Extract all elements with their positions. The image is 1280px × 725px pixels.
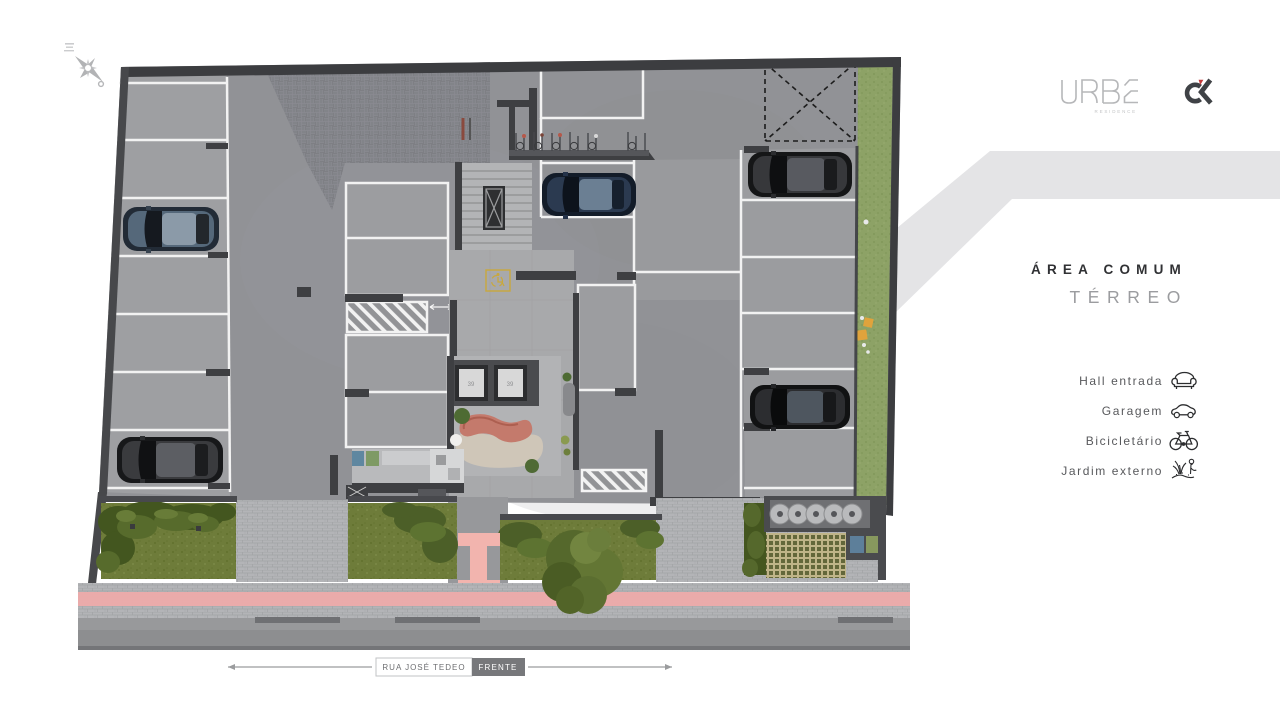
svg-text:ÁREA COMUM: ÁREA COMUM <box>1031 262 1187 277</box>
svg-text:Garagem: Garagem <box>1102 404 1163 418</box>
svg-text:Bicicletário: Bicicletário <box>1086 434 1163 448</box>
svg-text:TÉRREO: TÉRREO <box>1069 287 1188 307</box>
svg-text:FRENTE: FRENTE <box>478 663 517 672</box>
svg-text:39: 39 <box>507 382 514 388</box>
svg-text:RESIDENCE: RESIDENCE <box>1095 109 1137 114</box>
svg-text:Hall entrada: Hall entrada <box>1079 374 1163 388</box>
svg-text:RUA JOSÉ TEDEO: RUA JOSÉ TEDEO <box>382 663 465 672</box>
svg-text:Jardim externo: Jardim externo <box>1061 464 1163 478</box>
svg-text:39: 39 <box>468 382 475 388</box>
